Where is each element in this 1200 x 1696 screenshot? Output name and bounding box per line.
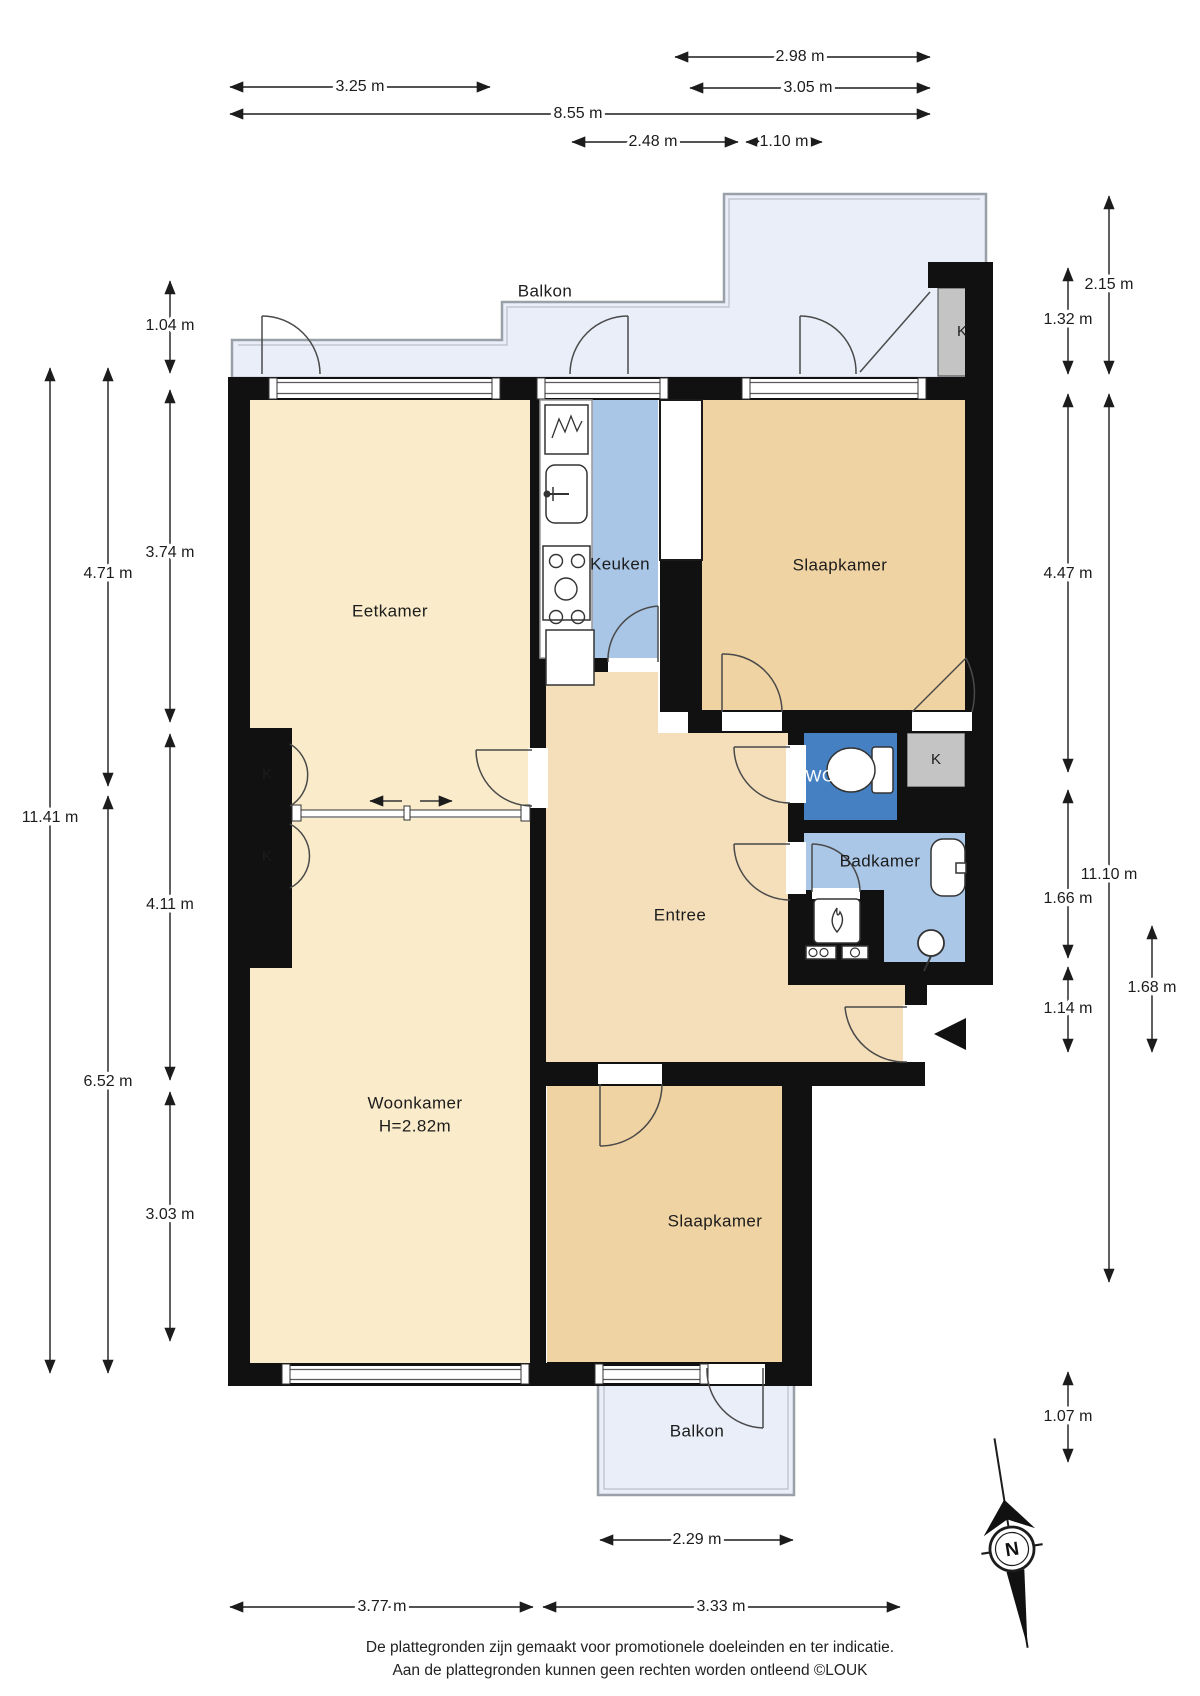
label-closet-k1: K	[262, 766, 272, 783]
footer-line1: De plattegronden zijn gemaakt voor promo…	[366, 1639, 894, 1656]
label-eetkamer: Eetkamer	[352, 601, 428, 620]
dim-right-6: 1.68 m	[1128, 979, 1177, 996]
dim-left-4: 4.11 m	[146, 896, 194, 913]
dim-top-3: 8.55 m	[554, 105, 603, 122]
label-closet-k2: K	[262, 848, 272, 865]
floorplan-drawing: Balkon Eetkamer Keuken Slaapkamer WC Bad…	[0, 0, 1200, 1696]
counter-end	[546, 630, 594, 685]
dim-right-4: 1.66 m	[1044, 890, 1093, 907]
label-entree: Entree	[654, 905, 707, 924]
dim-left-2: 4.71 m	[84, 565, 133, 582]
dim-top-4: 2.48 m	[629, 133, 678, 150]
dim-left-5: 6.52 m	[84, 1073, 133, 1090]
label-closet-bedroom: K	[931, 751, 941, 768]
dim-right-0: 2.15 m	[1085, 276, 1134, 293]
label-balkon-top: Balkon	[518, 281, 572, 300]
window-keuken	[537, 378, 668, 399]
dim-bottom-2: 3.33 m	[697, 1598, 746, 1615]
label-badkamer: Badkamer	[840, 851, 921, 870]
dim-top-0: 2.98 m	[776, 48, 825, 65]
boiler-icon	[814, 899, 860, 943]
label-keuken: Keuken	[590, 554, 650, 573]
compass-icon: N	[964, 1434, 1058, 1653]
label-woonkamer: Woonkamer	[368, 1093, 463, 1112]
label-woonkamer-height: H=2.82m	[379, 1116, 451, 1135]
entrance-arrow-icon	[934, 1018, 966, 1050]
balcony-top	[232, 194, 986, 378]
dim-top-5: 1.10 m	[760, 133, 809, 150]
window-eetkamer	[269, 378, 500, 399]
dim-left-6: 3.03 m	[146, 1206, 195, 1223]
fridge-icon	[545, 405, 588, 454]
washbasin-icon	[931, 839, 966, 896]
dim-left-0: 1.04 m	[146, 317, 195, 334]
label-slaapkamer-bottom: Slaapkamer	[668, 1211, 763, 1230]
footer-line2: Aan de plattegronden kunnen geen rechten…	[392, 1662, 868, 1679]
dim-right-5: 1.14 m	[1044, 1000, 1093, 1017]
window-woonkamer	[282, 1364, 529, 1384]
stove-icon	[543, 546, 590, 624]
label-closet-balcony: K	[957, 323, 967, 340]
label-balkon-bottom: Balkon	[670, 1421, 724, 1440]
dim-right-2: 4.47 m	[1044, 565, 1093, 582]
dim-right-3: 11.10 m	[1081, 866, 1138, 883]
window-slaapkamer-top	[742, 378, 926, 399]
floorplan-page: Balkon Eetkamer Keuken Slaapkamer WC Bad…	[0, 0, 1200, 1696]
window-slaapkamer-bottom	[595, 1364, 708, 1384]
shaft-pillar	[660, 400, 702, 560]
dim-bottom-0: 2.29 m	[673, 1531, 722, 1548]
dim-top-2: 3.05 m	[784, 79, 833, 96]
dim-right-7: 1.07 m	[1044, 1408, 1093, 1425]
label-slaapkamer-top: Slaapkamer	[793, 555, 888, 574]
dim-top-1: 3.25 m	[336, 78, 385, 95]
footer: De plattegronden zijn gemaakt voor promo…	[366, 1639, 894, 1679]
sink-icon	[544, 465, 588, 523]
dim-right-1: 1.32 m	[1044, 311, 1093, 328]
dim-bottom-1: 3.77 m	[358, 1598, 407, 1615]
dim-left-1: 3.74 m	[146, 544, 195, 561]
dim-left-3: 11.41 m	[22, 809, 79, 826]
toilet-icon	[827, 747, 893, 793]
label-wc: WC	[805, 766, 834, 785]
